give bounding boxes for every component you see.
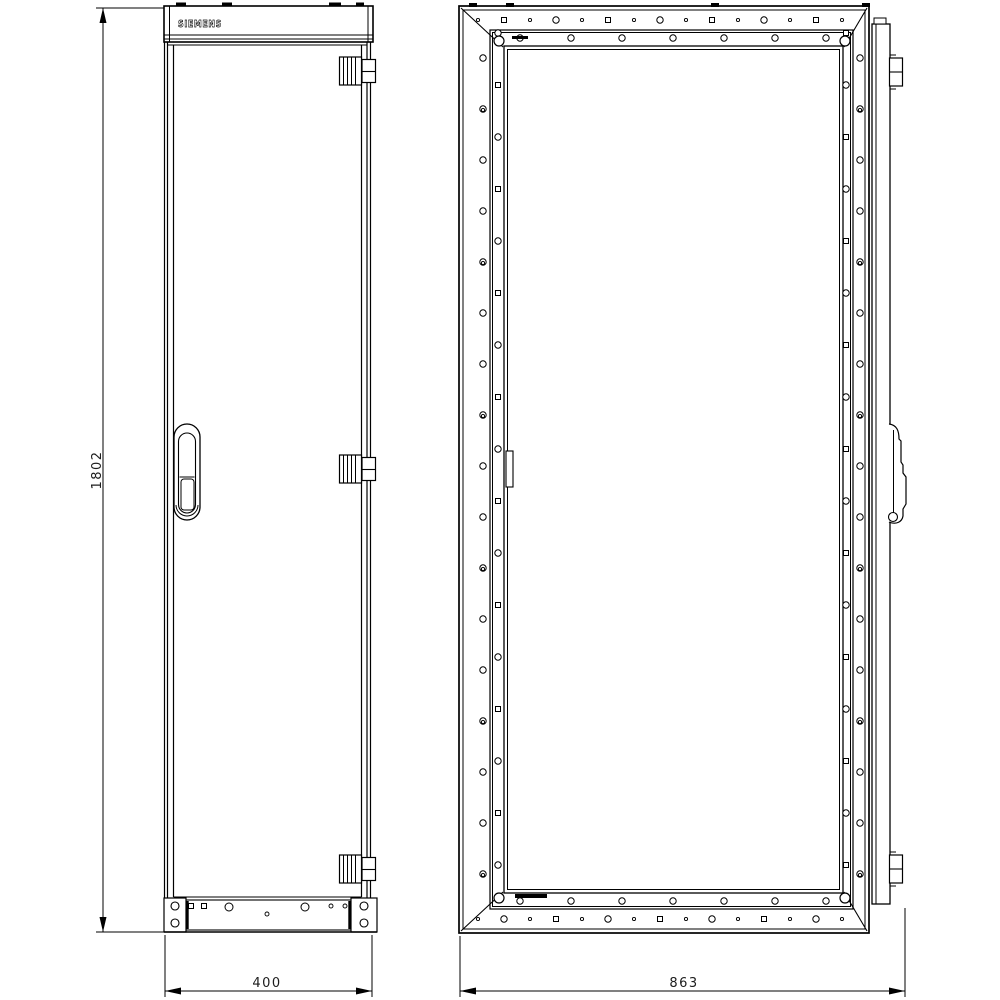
pilot-hole: [858, 567, 861, 570]
corner-hole: [840, 893, 850, 903]
mounting-hole: [857, 769, 863, 775]
mounting-hole: [495, 862, 501, 868]
mounting-hole: [495, 550, 501, 556]
mounting-hole: [619, 35, 625, 41]
pilot-hole: [528, 18, 531, 21]
square-hole: [762, 917, 767, 922]
mounting-hole: [480, 208, 486, 214]
mounting-hole: [553, 17, 559, 23]
mounting-hole: [843, 498, 849, 504]
arrow-right: [356, 988, 372, 995]
mounting-hole: [721, 35, 727, 41]
mounting-hole: [857, 208, 863, 214]
mounting-hole: [857, 157, 863, 163]
mounting-hole: [857, 463, 863, 469]
arrow-left: [165, 988, 181, 995]
square-hole: [844, 655, 849, 660]
siemens-logo-text: SIEMENS: [178, 19, 222, 30]
pilot-hole: [580, 18, 583, 21]
lifting-notch: [176, 3, 186, 7]
mounting-hole: [843, 810, 849, 816]
base-hole: [301, 903, 309, 911]
mounting-hole: [843, 82, 849, 88]
hinge-block: [340, 57, 362, 85]
square-hole: [606, 18, 611, 23]
square-hole: [844, 551, 849, 556]
pilot-hole: [858, 720, 861, 723]
arrow-left: [460, 988, 476, 995]
corner-hole: [494, 893, 504, 903]
arrow-up: [100, 8, 107, 23]
mounting-hole: [480, 667, 486, 673]
mounting-hole: [501, 916, 507, 922]
square-hole: [496, 707, 501, 712]
square-hole: [496, 499, 501, 504]
frame-bar: [512, 36, 528, 39]
pilot-hole: [481, 414, 484, 417]
mounting-hole: [480, 463, 486, 469]
pilot-hole: [858, 873, 861, 876]
mounting-hole: [721, 898, 727, 904]
mounting-hole: [823, 898, 829, 904]
pilot-hole: [840, 917, 843, 920]
mounting-hole: [857, 616, 863, 622]
corner-hole: [494, 36, 504, 46]
lifting-notch: [356, 3, 364, 7]
mounting-hole: [823, 35, 829, 41]
pilot-hole: [858, 108, 861, 111]
door-edge-strip: [872, 24, 890, 904]
square-hole: [496, 603, 501, 608]
mounting-hole: [480, 616, 486, 622]
strip-top-step: [874, 18, 886, 24]
rear-view: [459, 3, 906, 933]
pilot-hole: [788, 18, 791, 21]
engineering-drawing: SIEMENS 1802 400 863: [0, 0, 1000, 1000]
mounting-hole: [495, 758, 501, 764]
lifting-notch: [469, 3, 477, 7]
mounting-hole: [480, 514, 486, 520]
mounting-hole: [495, 134, 501, 140]
pilot-hole: [632, 917, 635, 920]
mounting-hole: [495, 342, 501, 348]
pilot-hole: [481, 873, 484, 876]
mounting-hole: [568, 898, 574, 904]
mounting-hole: [857, 820, 863, 826]
pilot-hole: [736, 18, 739, 21]
square-hole: [844, 135, 849, 140]
front-view: [164, 3, 377, 933]
mounting-hole: [480, 820, 486, 826]
mounting-hole: [605, 916, 611, 922]
pilot-hole: [840, 18, 843, 21]
pilot-hole: [481, 108, 484, 111]
pilot-hole: [684, 917, 687, 920]
pilot-hole: [632, 18, 635, 21]
square-hole: [844, 447, 849, 452]
mounting-hole: [843, 394, 849, 400]
lifting-notch: [222, 3, 232, 7]
mounting-hole: [857, 310, 863, 316]
base-hole: [360, 902, 368, 910]
square-hole: [844, 239, 849, 244]
frame-bar: [515, 894, 547, 898]
pilot-hole: [580, 917, 583, 920]
square-hole: [502, 18, 507, 23]
latch-keeper: [506, 451, 513, 487]
rear-outer-frame: [459, 6, 869, 933]
mounting-hole: [843, 186, 849, 192]
pilot-hole: [481, 261, 484, 264]
base-pilot-hole: [329, 904, 333, 908]
lifting-notch: [711, 3, 719, 7]
pilot-hole: [858, 261, 861, 264]
mounting-hole: [568, 35, 574, 41]
mounting-hole: [480, 769, 486, 775]
base-pilot-hole: [343, 904, 347, 908]
lifting-notch: [329, 3, 341, 7]
handle-profile: [889, 424, 906, 523]
pilot-hole: [788, 917, 791, 920]
mounting-hole: [670, 898, 676, 904]
square-hole: [844, 31, 849, 36]
mounting-hole: [843, 602, 849, 608]
mounting-hole: [843, 706, 849, 712]
mounting-hole: [857, 55, 863, 61]
mounting-hole: [480, 310, 486, 316]
square-hole: [844, 863, 849, 868]
arrow-right: [889, 988, 905, 995]
mounting-hole: [495, 238, 501, 244]
square-hole: [844, 759, 849, 764]
square-hole: [496, 83, 501, 88]
base-hole: [171, 919, 179, 927]
square-hole: [844, 343, 849, 348]
mounting-hole: [761, 17, 767, 23]
handle-profile-end: [889, 513, 898, 522]
hinge-block: [340, 855, 362, 883]
pilot-hole: [736, 917, 739, 920]
square-hole: [554, 917, 559, 922]
square-hole: [496, 187, 501, 192]
lifting-notch: [506, 3, 514, 7]
mounting-hole: [772, 898, 778, 904]
front-width-dimension-label: 400: [252, 976, 281, 991]
square-hole: [710, 18, 715, 23]
square-hole: [658, 917, 663, 922]
base-hole: [360, 919, 368, 927]
mounting-hole: [480, 361, 486, 367]
mounting-hole: [495, 30, 501, 36]
square-hole: [496, 291, 501, 296]
pilot-hole: [684, 18, 687, 21]
mounting-hole: [843, 290, 849, 296]
mounting-hole: [813, 916, 819, 922]
mounting-hole: [517, 898, 523, 904]
height-dimension-label: 1802: [90, 450, 105, 489]
mounting-hole: [495, 654, 501, 660]
pilot-hole: [528, 917, 531, 920]
pilot-hole: [481, 720, 484, 723]
mounting-hole: [495, 446, 501, 452]
mounting-hole: [480, 157, 486, 163]
mounting-hole: [857, 514, 863, 520]
rear-width-dimension-label: 863: [669, 976, 698, 991]
base-square-hole: [202, 904, 207, 909]
mounting-hole: [772, 35, 778, 41]
mounting-hole: [619, 898, 625, 904]
pilot-hole: [476, 917, 479, 920]
mounting-hole: [480, 55, 486, 61]
square-hole: [496, 395, 501, 400]
base-hole: [171, 902, 179, 910]
square-hole: [496, 811, 501, 816]
square-hole: [814, 18, 819, 23]
corner-hole: [840, 36, 850, 46]
mounting-hole: [657, 17, 663, 23]
pilot-hole: [476, 18, 479, 21]
base-square-hole: [189, 904, 194, 909]
pilot-hole: [481, 567, 484, 570]
hinge-block: [340, 455, 362, 483]
lifting-notch: [862, 3, 870, 7]
base-hole: [225, 903, 233, 911]
mounting-hole: [709, 916, 715, 922]
mounting-hole: [670, 35, 676, 41]
base-pilot-hole: [265, 912, 269, 916]
arrow-down: [100, 917, 107, 932]
mounting-hole: [857, 667, 863, 673]
pilot-hole: [858, 414, 861, 417]
cabinet-technical-drawing: SIEMENS 1802 400 863: [0, 0, 1000, 1000]
mounting-hole: [857, 361, 863, 367]
